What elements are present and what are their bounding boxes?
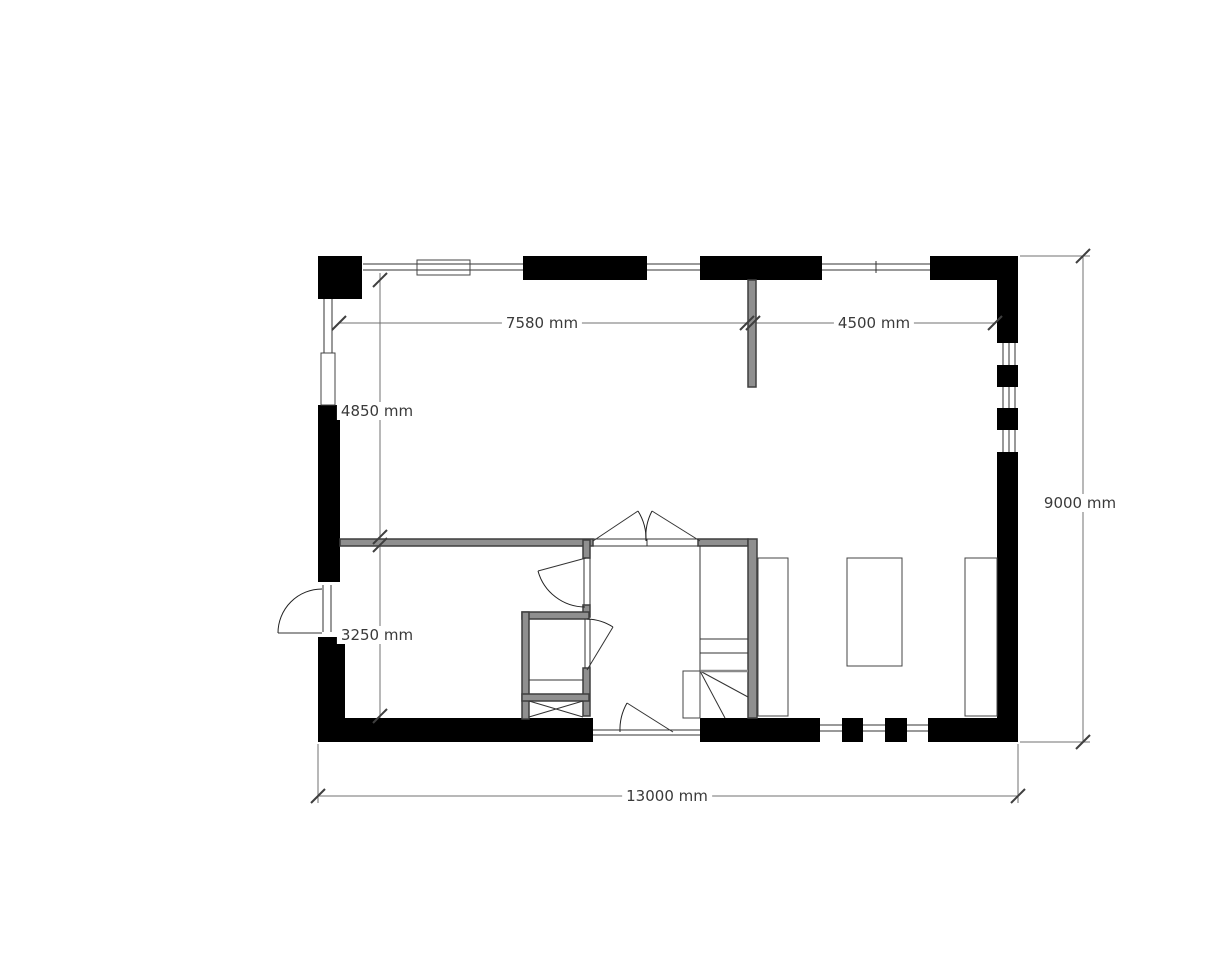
- floor-plan-page: 7580 mm 4500 mm 4850 mm 3250 mm 9000 mm …: [0, 0, 1229, 969]
- dimension-label-left-lower: 3250 mm: [337, 626, 417, 644]
- dimension-label-top-right: 4500 mm: [834, 314, 914, 332]
- dimension-label-right: 9000 mm: [1040, 494, 1120, 512]
- interior-walls: [340, 280, 757, 719]
- dimension-label-top-left: 7580 mm: [502, 314, 582, 332]
- floor-plan-canvas: [0, 0, 1229, 969]
- dimension-label-bottom: 13000 mm: [622, 787, 712, 805]
- dimension-label-left-upper: 4850 mm: [337, 402, 417, 420]
- windows-and-details: [278, 261, 1015, 735]
